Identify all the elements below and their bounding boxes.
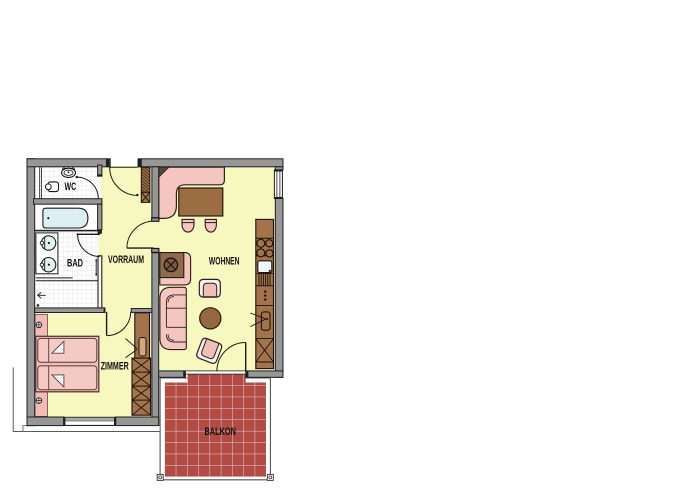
svg-text:WOHNEN: WOHNEN: [209, 256, 240, 268]
svg-text:ZIMMER: ZIMMER: [101, 360, 129, 372]
svg-text:WC: WC: [65, 181, 77, 193]
svg-text:BALKON: BALKON: [204, 426, 236, 438]
svg-text:BAD: BAD: [67, 257, 83, 269]
svg-text:VORRAUM: VORRAUM: [108, 254, 144, 266]
